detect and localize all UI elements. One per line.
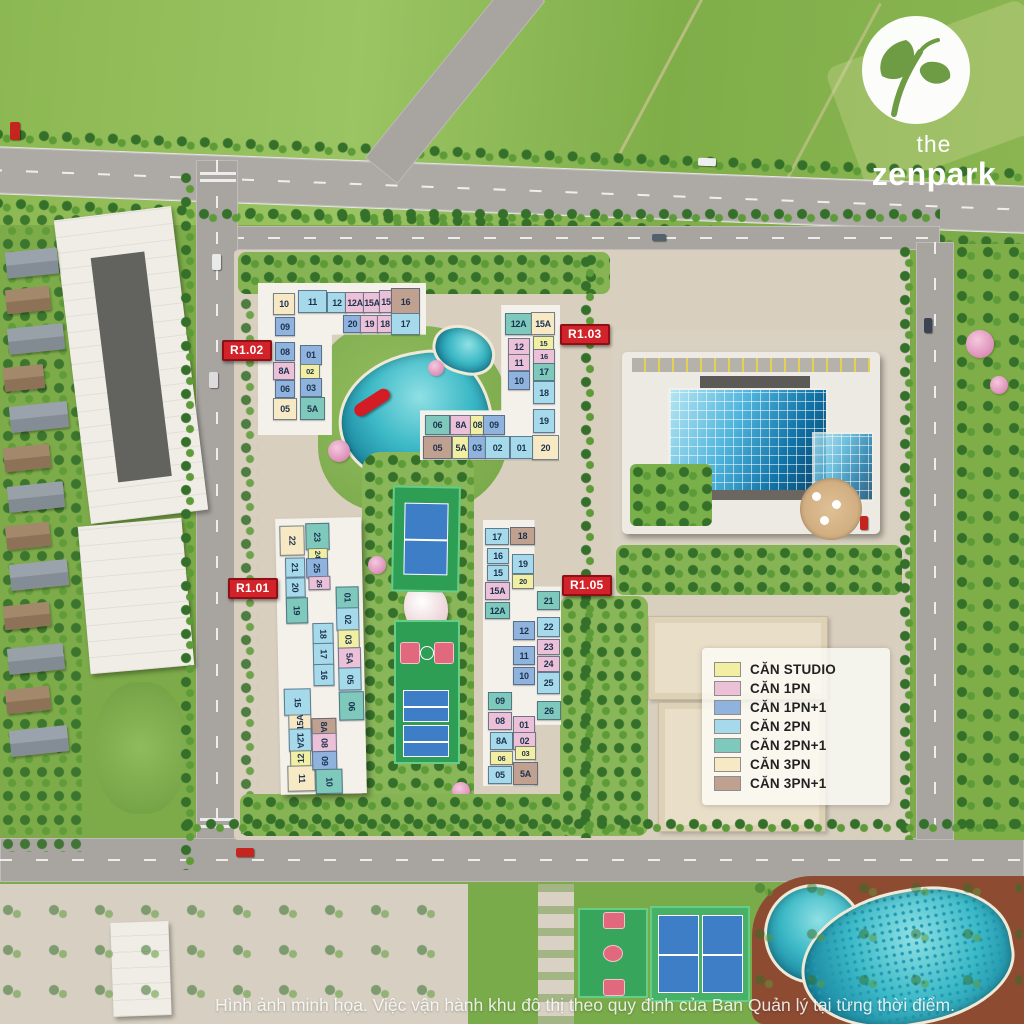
unit-tile-R1.01-21[interactable]: 21 <box>285 557 305 577</box>
unit-number: 03 <box>472 443 481 453</box>
unit-tile-R1.05-5A[interactable]: 5A <box>513 762 538 785</box>
unit-number: 03 <box>522 749 530 758</box>
building-R1.05: 17161515A12A1819201211102122232425260908… <box>483 520 561 786</box>
unit-tile-R1.02-06[interactable]: 06 <box>275 380 295 398</box>
unit-tile-R1.05-16[interactable]: 16 <box>487 548 509 564</box>
unit-number: 09 <box>320 756 330 766</box>
unit-tile-R1.05-22[interactable]: 22 <box>537 617 560 637</box>
legend-label: CĂN 3PN+1 <box>750 776 826 791</box>
unit-tile-R1.05-21[interactable]: 21 <box>537 591 560 610</box>
unit-tile-R1.05-19[interactable]: 19 <box>512 554 534 574</box>
unit-number: 15 <box>381 297 390 307</box>
unit-tile-R1.01-10[interactable]: 10 <box>315 769 343 795</box>
unit-number: 11 <box>515 358 524 368</box>
unit-number: 20 <box>519 577 527 586</box>
unit-number: 20 <box>348 319 357 329</box>
legend-label: CĂN 2PN+1 <box>750 738 826 753</box>
building-R1.03: 12A15A151617181920121110068A0809055A0302… <box>420 305 560 460</box>
unit-tile-R1.01-03[interactable]: 03 <box>337 629 359 648</box>
unit-number: 09 <box>495 696 504 706</box>
unit-number: 15 <box>493 568 502 578</box>
unit-tile-R1.05-18[interactable]: 18 <box>510 527 535 545</box>
unit-number: 12 <box>332 298 341 308</box>
unit-number: 22 <box>287 536 297 546</box>
legend-swatch-studio <box>714 662 741 677</box>
unit-number: 08 <box>280 347 289 357</box>
legend-label: CĂN 3PN <box>750 757 811 772</box>
unit-tile-R1.03-06[interactable]: 06 <box>425 415 450 435</box>
unit-number: 05 <box>280 404 289 414</box>
unit-tile-R1.03-17[interactable]: 17 <box>533 363 555 381</box>
unit-tile-R1.03-16[interactable]: 16 <box>533 349 555 364</box>
unit-number: 12 <box>519 626 528 636</box>
unit-number: 01 <box>519 720 528 730</box>
unit-tile-R1.01-23[interactable]: 23 <box>305 523 330 550</box>
unit-number: 05 <box>345 674 355 684</box>
unit-number: 15A <box>490 586 506 596</box>
zenpark-logo: the zenpark <box>842 14 1024 193</box>
unit-number: 06 <box>280 384 289 394</box>
unit-number: 12A <box>511 319 527 329</box>
unit-tile-R1.02-12[interactable]: 12 <box>327 292 347 313</box>
unit-number: 24 <box>544 659 553 669</box>
unit-tile-R1.01-05[interactable]: 05 <box>338 667 361 690</box>
unit-number: 12A <box>490 606 506 616</box>
unit-number: 01 <box>517 443 526 453</box>
legend-label: CĂN 1PN+1 <box>750 700 826 715</box>
unit-tile-R1.05-11[interactable]: 11 <box>513 646 535 665</box>
unit-number: 25 <box>312 563 322 573</box>
unit-number: 15 <box>540 339 548 348</box>
unit-number: 02 <box>520 736 529 746</box>
legend-swatch-2pn1 <box>714 738 741 753</box>
unit-tile-R1.02-16[interactable]: 16 <box>391 288 420 315</box>
leaf-logo-icon <box>842 14 1024 130</box>
unit-tile-R1.05-8A[interactable]: 8A <box>490 732 513 750</box>
unit-tile-R1.02-11[interactable]: 11 <box>298 290 327 313</box>
building-R1.02: 10111212A15A15162019181709088A0605010203… <box>258 283 426 435</box>
unit-number: 08 <box>319 738 329 748</box>
unit-number: 19 <box>539 416 548 426</box>
unit-number: 5A <box>456 443 467 453</box>
unit-tile-R1.03-09[interactable]: 09 <box>483 415 505 435</box>
unit-tile-R1.01-5A[interactable]: 5A <box>338 647 361 668</box>
unit-tile-R1.05-26[interactable]: 26 <box>537 701 561 720</box>
unit-number: 8A <box>279 366 290 376</box>
unit-tile-R1.01-01[interactable]: 01 <box>336 586 359 608</box>
unit-number: 8A <box>496 736 507 746</box>
unit-number: 18 <box>539 388 548 398</box>
unit-tile-R1.03-15A[interactable]: 15A <box>531 312 555 335</box>
unit-number: 26 <box>544 706 553 716</box>
legend-swatch-2pn <box>714 719 741 734</box>
unit-number: 5A <box>307 404 318 414</box>
unit-number: 06 <box>346 701 356 711</box>
unit-number: 26 <box>315 579 324 587</box>
unit-number: 23 <box>312 532 322 542</box>
legend-item-3pn1: CĂN 3PN+1 <box>714 776 878 791</box>
unit-number: 20 <box>541 443 550 453</box>
legend-item-2pn1: CĂN 2PN+1 <box>714 738 878 753</box>
unit-number: 19 <box>292 606 302 616</box>
unit-number: 02 <box>493 443 502 453</box>
unit-tile-R1.01-26[interactable]: 26 <box>308 576 330 590</box>
unit-number: 25 <box>544 678 553 688</box>
unit-number: 09 <box>280 322 289 332</box>
unit-number: 16 <box>493 551 502 561</box>
unit-number: 06 <box>498 754 506 763</box>
unit-number: 12 <box>296 754 306 764</box>
unit-number: 10 <box>279 299 288 309</box>
unit-tile-R1.01-09[interactable]: 09 <box>312 751 337 771</box>
unit-tile-R1.01-18[interactable]: 18 <box>312 623 333 644</box>
unit-number: 10 <box>519 671 528 681</box>
unit-tile-R1.03-03[interactable]: 03 <box>468 436 486 459</box>
masterplan: 10111212A15A15162019181709088A0605010203… <box>0 0 1024 1024</box>
building-badge-R1.05[interactable]: R1.05 <box>562 575 612 596</box>
unit-number: 09 <box>489 420 498 430</box>
legend-swatch-1pn1 <box>714 700 741 715</box>
building-badge-R1.01[interactable]: R1.01 <box>228 578 278 599</box>
unit-tile-R1.03-10[interactable]: 10 <box>508 371 530 390</box>
unit-tile-R1.05-23[interactable]: 23 <box>537 639 560 655</box>
unit-tile-R1.02-12A[interactable]: 12A <box>345 292 365 313</box>
unit-number: 21 <box>290 563 300 573</box>
unit-number: 02 <box>343 614 353 624</box>
unit-tile-R1.02-17[interactable]: 17 <box>391 313 420 335</box>
unit-number: 12 <box>514 342 523 352</box>
unit-tile-R1.03-12[interactable]: 12 <box>508 338 530 355</box>
unit-tile-R1.01-12A[interactable]: 12A <box>289 728 312 751</box>
legend-label: CĂN 1PN <box>750 681 811 696</box>
unit-tile-R1.02-01[interactable]: 01 <box>300 345 322 365</box>
unit-tile-R1.05-08[interactable]: 08 <box>488 712 512 730</box>
unit-number: 17 <box>318 649 328 659</box>
unit-tile-R1.01-02[interactable]: 02 <box>336 607 359 630</box>
unit-number: 18 <box>380 319 389 329</box>
unit-number: 8A <box>456 420 467 430</box>
unit-tile-R1.03-20[interactable]: 20 <box>532 435 559 460</box>
unit-number: 11 <box>296 774 306 783</box>
unit-tile-R1.05-17[interactable]: 17 <box>485 528 509 545</box>
unit-number: 01 <box>306 350 315 360</box>
unit-number: 23 <box>544 642 553 652</box>
unit-tile-R1.01-16[interactable]: 16 <box>313 664 334 686</box>
unit-number: 12A <box>295 732 305 748</box>
unit-tile-R1.03-15[interactable]: 15 <box>533 336 554 350</box>
unit-number: 20 <box>290 583 300 593</box>
unit-tile-R1.05-03[interactable]: 03 <box>515 746 536 760</box>
unit-tile-R1.01-20[interactable]: 20 <box>285 577 305 597</box>
unit-tile-R1.02-10[interactable]: 10 <box>273 293 295 315</box>
unit-tile-R1.02-05[interactable]: 05 <box>273 398 297 420</box>
unit-tile-R1.03-19[interactable]: 19 <box>533 409 555 433</box>
unit-number: 24 <box>313 550 322 558</box>
legend-swatch-1pn <box>714 681 741 696</box>
legend-swatch-3pn <box>714 757 741 772</box>
unit-number: 5A <box>520 769 531 779</box>
unit-tile-R1.03-18[interactable]: 18 <box>533 381 555 404</box>
legend-item-2pn: CĂN 2PN <box>714 719 878 734</box>
unit-number: 22 <box>544 622 553 632</box>
legend-label: CĂN 2PN <box>750 719 811 734</box>
unit-tile-R1.05-12[interactable]: 12 <box>513 621 535 640</box>
unit-tile-R1.01-12[interactable]: 12 <box>290 750 311 766</box>
unit-number: 18 <box>518 531 527 541</box>
unit-tile-R1.03-11[interactable]: 11 <box>508 354 530 371</box>
logo-word-the: the <box>842 131 1024 158</box>
building-badge-R1.03[interactable]: R1.03 <box>560 324 610 345</box>
unit-tile-R1.05-25[interactable]: 25 <box>537 672 560 694</box>
unit-tile-R1.03-02[interactable]: 02 <box>485 436 510 459</box>
legend-item-3pn: CĂN 3PN <box>714 757 878 772</box>
disclaimer-text: Hình ảnh minh họa. Việc vận hành khu đô … <box>150 995 1020 1016</box>
unit-type-legend: CĂN STUDIOCĂN 1PNCĂN 1PN+1CĂN 2PNCĂN 2PN… <box>702 648 890 805</box>
unit-tile-R1.05-06[interactable]: 06 <box>490 751 513 765</box>
unit-tile-R1.05-15[interactable]: 15 <box>487 565 509 581</box>
unit-number: 08 <box>473 420 482 430</box>
unit-tile-R1.03-05[interactable]: 05 <box>423 436 452 459</box>
unit-number: 05 <box>433 443 442 453</box>
unit-tile-R1.03-01[interactable]: 01 <box>510 436 533 459</box>
unit-number: 11 <box>308 297 317 307</box>
unit-number: 16 <box>319 670 329 680</box>
unit-tile-R1.01-17[interactable]: 17 <box>313 643 334 665</box>
unit-number: 18 <box>318 629 328 639</box>
unit-tile-R1.02-5A[interactable]: 5A <box>300 397 325 420</box>
unit-tile-R1.05-09[interactable]: 09 <box>488 692 512 710</box>
unit-number: 02 <box>306 367 314 376</box>
unit-tile-R1.02-8A[interactable]: 8A <box>273 362 295 380</box>
unit-tile-R1.05-20[interactable]: 20 <box>512 574 534 589</box>
unit-number: 16 <box>540 352 548 361</box>
unit-number: 15 <box>292 697 302 707</box>
unit-number: 08 <box>495 716 504 726</box>
unit-number: 8A <box>319 721 329 732</box>
unit-tile-R1.05-15A[interactable]: 15A <box>485 582 510 600</box>
unit-number: 03 <box>306 383 315 393</box>
unit-number: 15A <box>535 319 551 329</box>
unit-number: 16 <box>401 297 410 307</box>
unit-number: 17 <box>539 367 548 377</box>
legend-swatch-3pn1 <box>714 776 741 791</box>
unit-number: 10 <box>514 376 523 386</box>
unit-tile-R1.03-8A[interactable]: 8A <box>450 415 472 435</box>
unit-tile-R1.01-15[interactable]: 15 <box>284 688 312 716</box>
unit-tile-R1.01-19[interactable]: 19 <box>286 597 309 623</box>
unit-tile-R1.02-09[interactable]: 09 <box>275 317 295 336</box>
unit-number: 06 <box>433 420 442 430</box>
legend-item-1pn1: CĂN 1PN+1 <box>714 700 878 715</box>
legend-item-1pn: CĂN 1PN <box>714 681 878 696</box>
unit-tile-R1.05-05[interactable]: 05 <box>488 766 512 784</box>
unit-number: 12A <box>347 298 363 308</box>
unit-number: 5A <box>344 652 354 663</box>
unit-tile-R1.02-08[interactable]: 08 <box>275 342 295 361</box>
unit-number: 05 <box>495 770 504 780</box>
unit-tile-R1.01-22[interactable]: 22 <box>279 525 305 556</box>
unit-number: 19 <box>518 559 527 569</box>
unit-tile-R1.01-06[interactable]: 06 <box>339 691 365 721</box>
unit-tile-R1.05-24[interactable]: 24 <box>537 656 560 672</box>
unit-tile-R1.03-12A[interactable]: 12A <box>505 313 532 335</box>
unit-tile-R1.02-03[interactable]: 03 <box>300 378 322 397</box>
unit-number: 21 <box>544 596 553 606</box>
unit-number: 03 <box>344 634 354 644</box>
logo-word-zenpark: zenpark <box>842 156 1024 193</box>
building-badge-R1.02[interactable]: R1.02 <box>222 340 272 361</box>
unit-number: 19 <box>365 319 374 329</box>
unit-number: 10 <box>324 777 334 787</box>
unit-tile-R1.02-02[interactable]: 02 <box>300 364 320 379</box>
legend-label: CĂN STUDIO <box>750 662 836 677</box>
unit-number: 01 <box>342 593 352 603</box>
building-R1.01: 22232425262120190102035A05061817161515A1… <box>275 517 367 795</box>
legend-item-studio: CĂN STUDIO <box>714 662 878 677</box>
unit-tile-R1.05-12A[interactable]: 12A <box>485 602 510 619</box>
unit-tile-R1.05-10[interactable]: 10 <box>513 667 535 685</box>
unit-number: 17 <box>492 532 501 542</box>
unit-number: 17 <box>401 319 410 329</box>
unit-number: 15A <box>364 298 380 308</box>
unit-number: 11 <box>520 651 529 661</box>
